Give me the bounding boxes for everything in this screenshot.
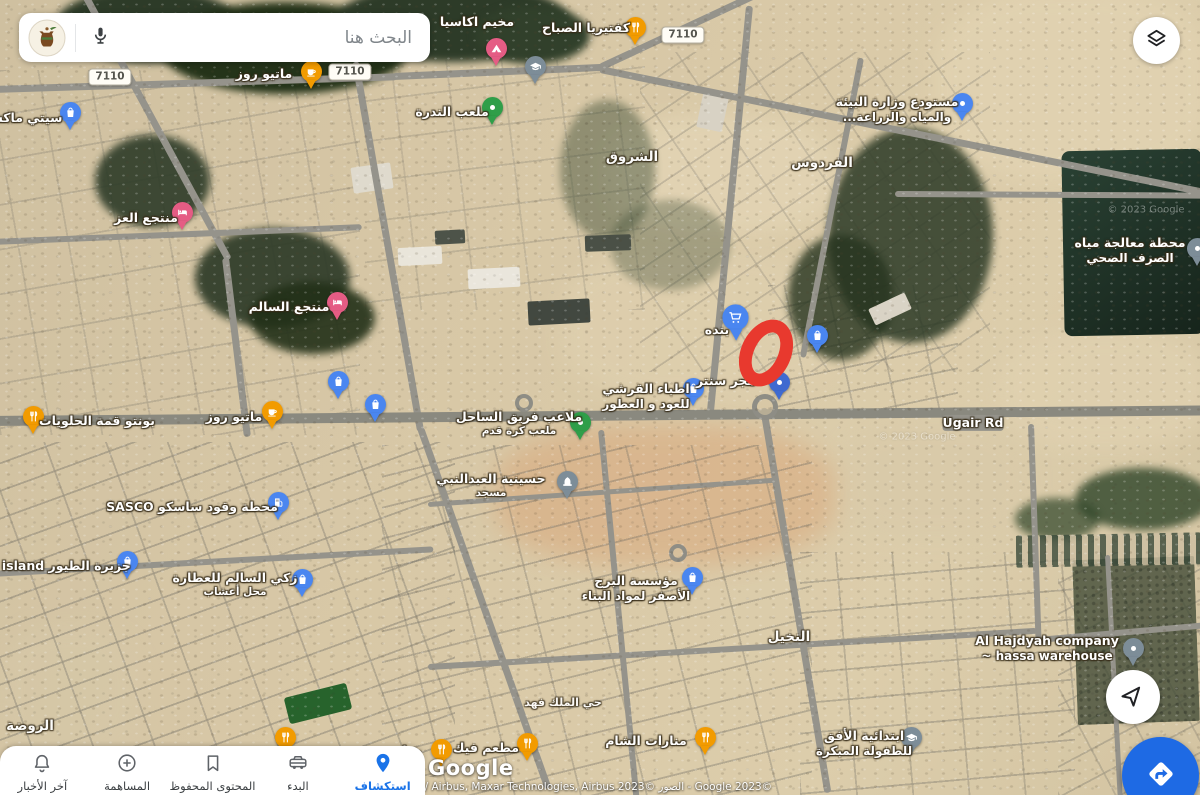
map-label[interactable]: مؤسسة البرجالأصفر لمواد البناء [582, 573, 691, 605]
nav-item-label: آخر الأخبار [18, 779, 68, 793]
pin-icon [1127, 642, 1140, 655]
pin-icon [435, 743, 448, 756]
map-label: © 2023 Google [878, 431, 955, 444]
nav-item-saved[interactable]: المحتوى المحفوظ [170, 746, 256, 795]
locate-button[interactable] [1106, 670, 1160, 724]
pin-icon [490, 42, 503, 55]
map-label[interactable]: ماتيو روز [206, 409, 263, 425]
pin-icon [561, 475, 574, 488]
pin-icon [331, 296, 344, 309]
map-label[interactable]: بنده [705, 322, 729, 338]
pin-icon [521, 737, 534, 750]
bottom-nav: آخر الأخبار المساهمة المحتوى المحفوظ ال [0, 746, 425, 795]
fork-pin[interactable] [517, 733, 538, 763]
pin-icon [727, 309, 743, 325]
nav-item-contribute[interactable]: المساهمة [85, 746, 170, 795]
pin-icon [1191, 242, 1200, 255]
map-label[interactable]: محطة وقود ساسكو SASCO [106, 499, 278, 515]
dot-pin[interactable] [1187, 238, 1200, 268]
map-label[interactable]: محطة معالجة مياهالصرف الصحي [1075, 235, 1186, 267]
nav-item-news[interactable]: آخر الأخبار [0, 746, 85, 795]
map-label[interactable]: Al Hajdyah company~ hassa warehouse [975, 633, 1119, 665]
pin-icon [529, 60, 542, 73]
cup-pin[interactable] [301, 61, 322, 91]
layers-button[interactable] [1133, 17, 1180, 64]
map-label[interactable]: جزيرة الطيور bird island [0, 558, 131, 574]
account-avatar-icon [28, 19, 66, 57]
bag-pin[interactable] [807, 325, 828, 355]
bag-pin[interactable] [365, 394, 386, 424]
tent-pin[interactable] [486, 38, 507, 68]
pin-icon [629, 21, 642, 34]
map-texture [0, 0, 1200, 795]
map-label: © 2023 Google [1107, 204, 1184, 217]
bell-icon [31, 752, 53, 778]
car-icon [287, 752, 309, 778]
voice-search-button[interactable] [82, 20, 118, 56]
route-badge: 7110 [328, 64, 371, 81]
pin-icon [369, 398, 382, 411]
map-label[interactable]: منتجع العز [114, 210, 178, 226]
map-label[interactable]: منارات الشام [605, 733, 686, 749]
cup-pin[interactable] [262, 401, 283, 431]
plus-circle-icon [116, 752, 138, 778]
route-badge: 7110 [88, 69, 131, 86]
map-label: الشروق [606, 149, 658, 167]
bed-pin[interactable] [327, 292, 348, 322]
navigation-arrow-icon [1121, 683, 1145, 711]
map-label[interactable]: ملاعب فريق الساحلملعب كرة قدم [456, 409, 582, 439]
map-label[interactable]: مطعم فيك [453, 740, 519, 756]
map-label: Ugair Rd [943, 415, 1004, 431]
nav-item-commute[interactable]: البدء [256, 746, 341, 795]
pin-icon [266, 405, 279, 418]
map-label: حي الملك فهد [524, 696, 602, 710]
dome-pin[interactable] [557, 471, 578, 501]
dot-pin[interactable] [1123, 638, 1144, 668]
pin-icon [699, 731, 712, 744]
bag-pin[interactable] [60, 102, 81, 132]
pin-icon [279, 731, 292, 744]
pin-icon [27, 410, 40, 423]
map-label[interactable]: منتجع السالم [249, 299, 330, 315]
pin-icon [332, 375, 345, 388]
map-label[interactable]: ابتدائية الأفقللطفولة المبكرة [816, 728, 912, 760]
map-label[interactable]: اطباء القرشيللعود و العطور [602, 381, 689, 413]
location-pin-icon [372, 752, 394, 778]
layers-icon [1145, 27, 1168, 54]
bookmark-icon [202, 752, 224, 778]
search-input[interactable] [118, 18, 424, 58]
nav-item-label: استكشاف [355, 779, 411, 793]
google-logo: Google [428, 756, 514, 780]
mic-icon [90, 25, 111, 50]
pin-icon [64, 106, 77, 119]
map-label[interactable]: ماتيو روز [236, 66, 293, 82]
nav-item-explore[interactable]: استكشاف [340, 746, 425, 795]
nav-item-label: البدء [287, 779, 309, 793]
map-label: الفردوس [791, 155, 853, 173]
map-label[interactable]: كفتيريا الصباح [542, 20, 630, 36]
map-label: الروضة [6, 718, 54, 736]
map-label[interactable]: حسينية العبدالنبيمسجد [436, 471, 545, 501]
map-label[interactable]: مخيم اكاسيا [440, 14, 514, 30]
directions-icon [1144, 757, 1178, 795]
pin-icon [305, 65, 318, 78]
bag-pin[interactable] [328, 371, 349, 401]
map-label[interactable]: سيتي ماكس [0, 110, 62, 126]
map-label[interactable]: بونتو قمة الحلويات [39, 413, 155, 429]
satellite-map[interactable]: مخيم اكاسياكفتيريا الصباحماتيو روزسيتي م… [0, 0, 1200, 795]
search-bar [19, 13, 430, 62]
account-button[interactable] [28, 19, 66, 57]
map-label[interactable]: ملعب الندرة [415, 104, 488, 120]
pin-icon [811, 329, 824, 342]
divider [75, 24, 76, 52]
map-label[interactable]: مستودع وزارة البيئةوالمياه والزراعة... [836, 94, 959, 126]
google-maps-app: مخيم اكاسياكفتيريا الصباحماتيو روزسيتي م… [0, 0, 1200, 795]
nav-item-label: المساهمة [104, 779, 150, 793]
map-label: النخيل [768, 629, 811, 647]
route-badge: 7110 [661, 27, 704, 44]
fork-pin[interactable] [695, 727, 716, 757]
map-label[interactable]: زكي السالم للعطارةمحل أعشاب [173, 570, 298, 600]
cap-pin[interactable] [525, 56, 546, 86]
nav-item-label: المحتوى المحفوظ [170, 779, 256, 793]
